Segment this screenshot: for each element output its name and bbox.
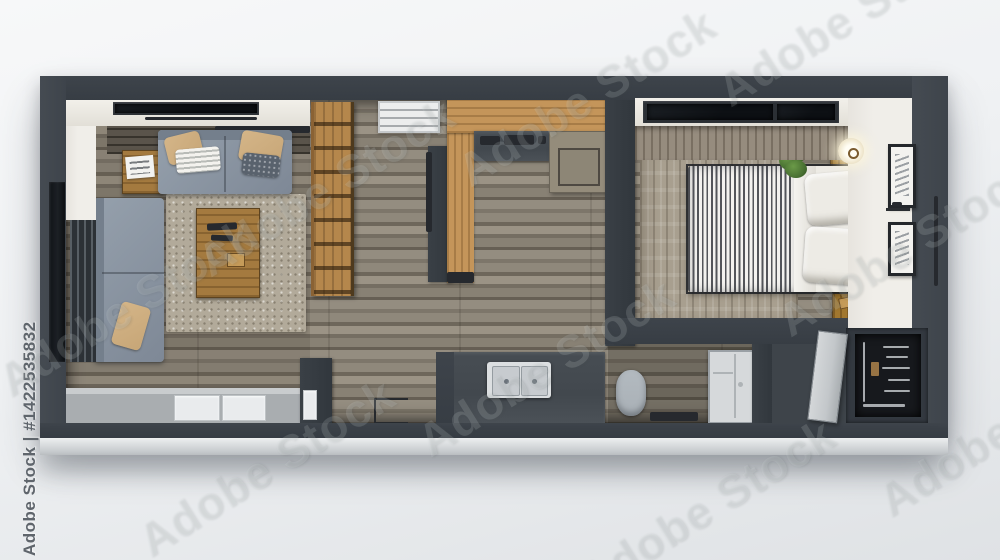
coffee-table bbox=[196, 208, 260, 298]
kitchen-worktop bbox=[474, 131, 550, 161]
console-top-edge bbox=[64, 388, 304, 394]
cooktop bbox=[504, 135, 534, 145]
wall-art-frame bbox=[888, 144, 916, 208]
adobe-stock-watermark-id: Adobe Stock | #1422535832 bbox=[20, 321, 40, 556]
right-wall-trim bbox=[934, 196, 938, 286]
magazine bbox=[125, 155, 155, 179]
sink-basin-left bbox=[492, 366, 520, 396]
bedroom-skylight bbox=[643, 101, 839, 123]
counter-end-cap bbox=[447, 272, 474, 283]
skylight-glass bbox=[115, 104, 257, 113]
cabinet-door-panel bbox=[558, 148, 600, 186]
wardrobe-interior bbox=[855, 334, 921, 417]
wall-bottom bbox=[40, 423, 948, 438]
sink-basin-right bbox=[521, 366, 548, 396]
skylight-glass bbox=[777, 104, 835, 120]
double-sink bbox=[487, 362, 551, 398]
table-lamp bbox=[838, 138, 864, 164]
small-appliance bbox=[480, 136, 500, 145]
clothes-sketch bbox=[884, 390, 910, 392]
entry-door-swing-symbol bbox=[374, 398, 408, 424]
striped-duvet bbox=[688, 166, 798, 292]
ceiling-vent bbox=[378, 101, 440, 133]
toilet bbox=[616, 370, 646, 416]
console-end-cabinet bbox=[300, 358, 332, 423]
art-sketch bbox=[895, 231, 908, 266]
clothes-sketch bbox=[883, 346, 909, 348]
clothes-sketch bbox=[886, 356, 908, 358]
wall-shelf bbox=[886, 208, 910, 211]
stock-photo-canvas: Adobe Stock | #1422535832 Adobe Stock Ad… bbox=[0, 0, 1000, 560]
art-sketch bbox=[895, 154, 908, 196]
skylight-glass bbox=[647, 104, 773, 120]
left-window bbox=[49, 182, 65, 362]
clothes-sketch bbox=[882, 367, 910, 369]
shelf-decor bbox=[892, 202, 902, 206]
shower-handle bbox=[738, 382, 743, 387]
wall-mounted-tv bbox=[426, 152, 432, 232]
wall-art-frame bbox=[888, 222, 916, 276]
kitchen-bedroom-wall bbox=[605, 96, 635, 346]
clothes-sketch bbox=[863, 404, 905, 407]
lamp-ring bbox=[848, 148, 859, 159]
kitchen-cabinet bbox=[549, 131, 607, 193]
bedroom-wood-wall-panel bbox=[635, 126, 848, 160]
bookshelf-unit bbox=[311, 102, 354, 296]
closet-rail bbox=[863, 342, 865, 402]
entry-wall-stub bbox=[436, 352, 454, 423]
striped-blanket bbox=[175, 146, 221, 174]
table-tray bbox=[207, 222, 237, 231]
console-drawer bbox=[222, 395, 266, 421]
floorplan bbox=[40, 76, 948, 438]
sink-drain bbox=[504, 379, 509, 384]
throw-pillow-patterned bbox=[241, 152, 281, 178]
bedroom-white-wall bbox=[848, 98, 912, 344]
table-remote bbox=[211, 235, 233, 242]
floorplan-base-edge bbox=[40, 438, 948, 455]
skylight-trim bbox=[145, 117, 257, 120]
shower-enclosure bbox=[708, 350, 756, 424]
small-appliance bbox=[538, 136, 546, 144]
sofa-seam bbox=[102, 272, 164, 274]
sofa-seam bbox=[224, 136, 226, 192]
cabinet-panel bbox=[303, 390, 317, 420]
sink-drain bbox=[532, 379, 537, 384]
table-box bbox=[227, 253, 245, 267]
kitchen-counter-top bbox=[447, 97, 607, 133]
window-louvre-panel bbox=[70, 220, 96, 362]
clothes-item bbox=[871, 362, 879, 376]
plant-foliage bbox=[785, 160, 807, 178]
bathroom-wall bbox=[752, 344, 772, 423]
wall-top bbox=[40, 76, 948, 100]
console-drawer bbox=[174, 395, 220, 421]
clothes-sketch bbox=[888, 379, 910, 381]
tv-console bbox=[64, 388, 304, 423]
living-skylight bbox=[113, 102, 259, 115]
glass-divider bbox=[713, 372, 733, 374]
glass-divider bbox=[734, 354, 736, 418]
bath-mat bbox=[650, 412, 698, 421]
